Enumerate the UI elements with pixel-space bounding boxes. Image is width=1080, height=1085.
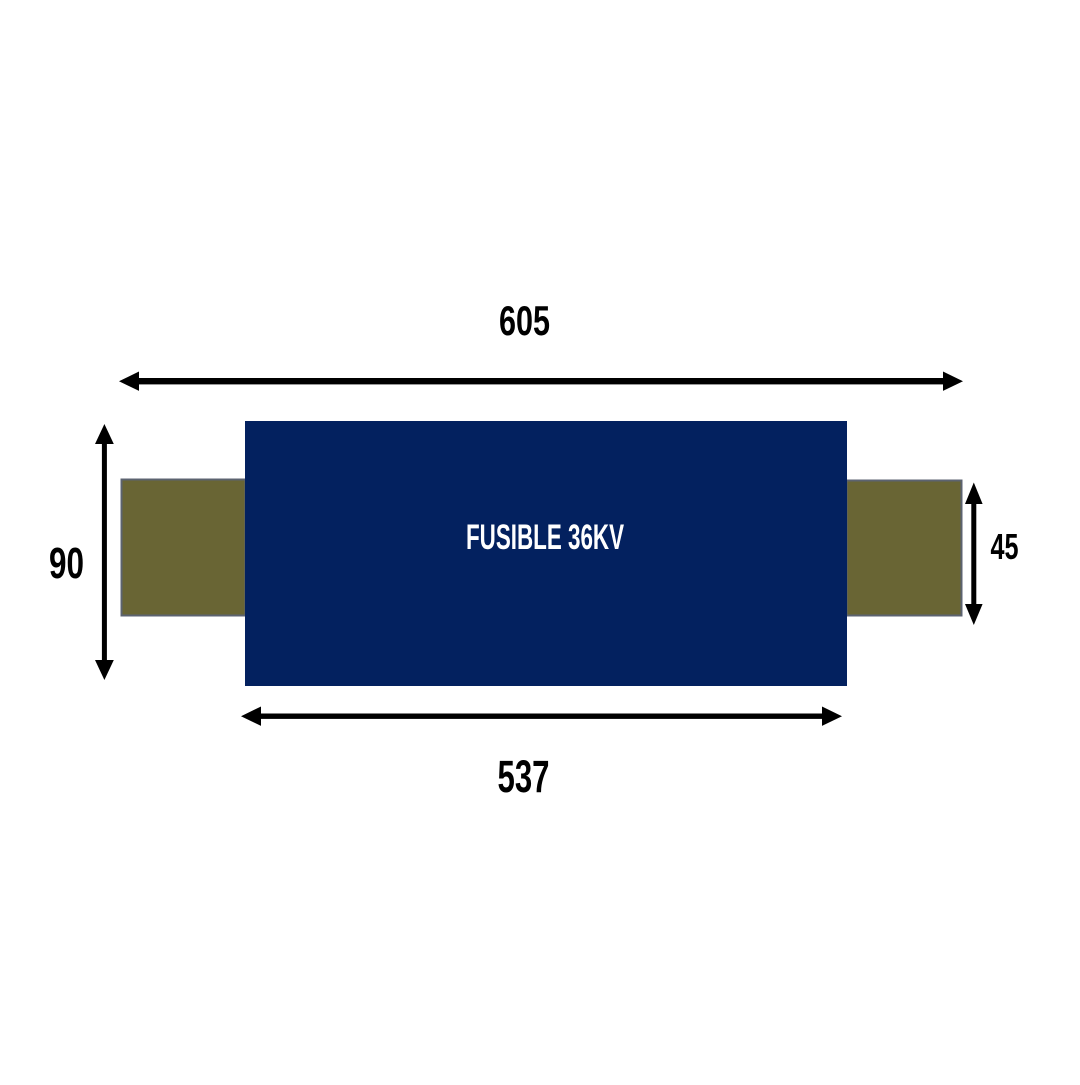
svg-text:605: 605: [499, 297, 550, 344]
svg-text:537: 537: [498, 751, 550, 802]
svg-text:90: 90: [49, 539, 84, 588]
svg-text:FUSIBLE 36KV: FUSIBLE 36KV: [466, 518, 624, 557]
svg-text:45: 45: [991, 526, 1019, 567]
